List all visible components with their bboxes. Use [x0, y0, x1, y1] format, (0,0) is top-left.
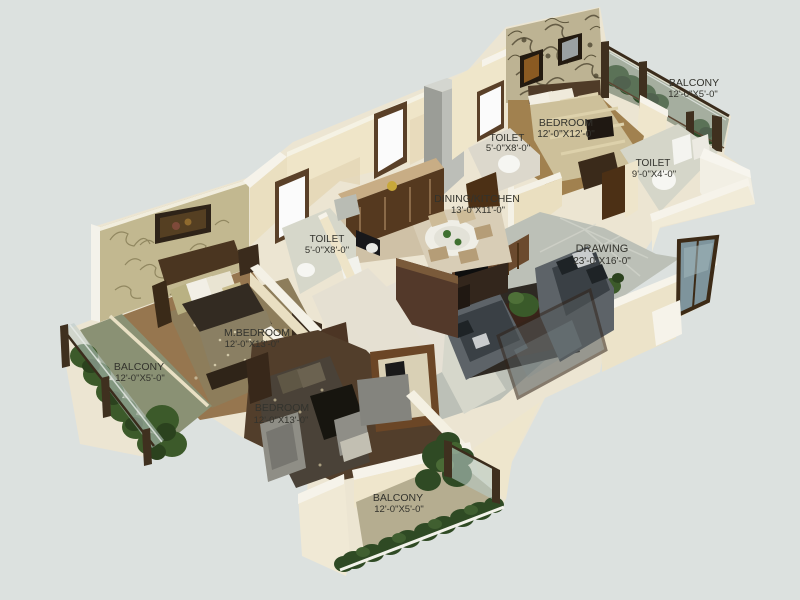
- svg-text:TOILET: TOILET: [636, 158, 671, 169]
- svg-text:12'-0"X5'-0": 12'-0"X5'-0": [115, 373, 164, 384]
- svg-text:12'-0"X13'-0": 12'-0"X13'-0": [254, 415, 309, 426]
- svg-text:12'-0"X13'-0": 12'-0"X13'-0": [225, 339, 280, 350]
- svg-text:BALCONY: BALCONY: [373, 492, 423, 504]
- svg-text:12'-0"X5'-0": 12'-0"X5'-0": [374, 504, 423, 515]
- svg-text:12'-0"X12'-0": 12'-0"X12'-0": [537, 129, 595, 140]
- svg-text:BEDROOM: BEDROOM: [255, 402, 309, 414]
- svg-text:DRAWING: DRAWING: [576, 243, 629, 255]
- svg-text:9'-0"X4'-0": 9'-0"X4'-0": [632, 169, 676, 180]
- svg-text:5'-0"X8'-0": 5'-0"X8'-0": [305, 245, 349, 256]
- svg-text:12'-0"X5'-0": 12'-0"X5'-0": [668, 89, 717, 100]
- svg-text:5'-0"X8'-0": 5'-0"X8'-0": [486, 143, 530, 154]
- svg-text:13'-0"X11'-0": 13'-0"X11'-0": [451, 205, 505, 216]
- svg-text:BALCONY: BALCONY: [114, 361, 164, 373]
- svg-text:BEDROOM: BEDROOM: [539, 117, 593, 129]
- svg-text:23'-0"X16'-0": 23'-0"X16'-0": [573, 256, 631, 267]
- svg-text:M.BEDROOM: M.BEDROOM: [224, 327, 290, 339]
- svg-text:TOILET: TOILET: [310, 234, 345, 245]
- svg-text:DINING/KITCHEN: DINING/KITCHEN: [434, 193, 520, 205]
- svg-text:BALCONY: BALCONY: [669, 77, 719, 89]
